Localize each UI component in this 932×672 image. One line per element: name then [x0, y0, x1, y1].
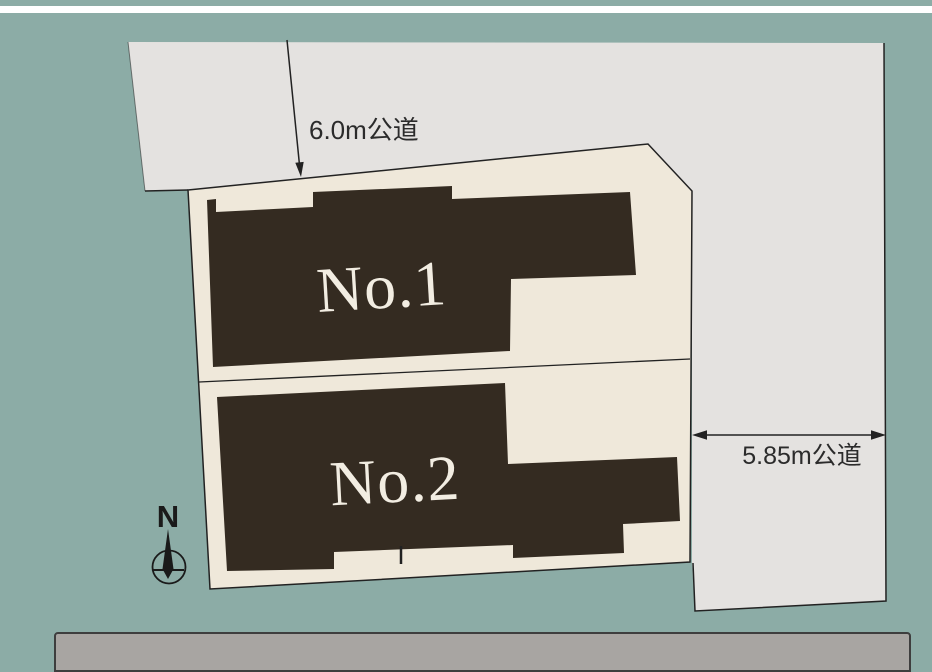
road-top-label: 6.0m公道 [309, 115, 419, 145]
north-label: N [157, 499, 179, 534]
site-plan-drawing: No.1 No.2 6.0m公道 5.85m公道 N [0, 0, 932, 644]
road-right-label: 5.85m公道 [742, 442, 861, 470]
lot2-label: No.2 [328, 442, 462, 520]
compass-needle [163, 529, 174, 579]
bottom-info-panel [54, 632, 911, 672]
lot1-label: No.1 [315, 247, 449, 326]
page-background: { "plan": { "road_top_label": "6.0m公道", … [0, 0, 932, 644]
north-compass: N [153, 499, 186, 584]
road-bottom-left-line [145, 190, 188, 191]
